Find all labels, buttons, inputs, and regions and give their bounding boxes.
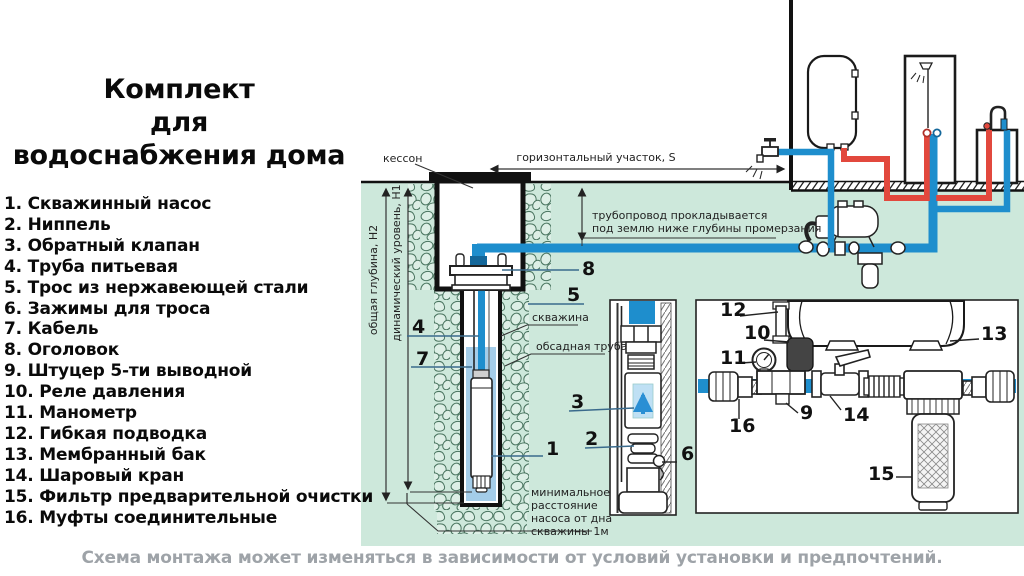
parts-legend: 1. Скважинный насос 2. Ниппель 3. Обратн… xyxy=(4,194,360,529)
flexible-hose xyxy=(776,306,786,340)
shower-hot-valve xyxy=(923,129,930,136)
callout-14: 14 xyxy=(843,404,869,426)
title-line-3: водоснабжения дома xyxy=(0,140,358,173)
pump-top-detail xyxy=(619,468,667,513)
legend-item-5: 5. Трос из нержавеющей стали xyxy=(4,278,360,299)
callout-11: 11 xyxy=(720,347,746,369)
callout-10: 10 xyxy=(744,322,770,344)
title-line-2: для xyxy=(0,107,358,140)
detail-pipe-stub xyxy=(629,301,655,324)
callout-9: 9 xyxy=(800,402,813,424)
legend-item-15: 15. Фильтр предварительной очистки xyxy=(4,487,360,508)
borehole xyxy=(462,262,500,505)
legend-item-7: 7. Кабель xyxy=(4,319,360,340)
legend-item-13: 13. Мембранный бак xyxy=(4,445,360,466)
legend-item-9: 9. Штуцер 5-ти выводной xyxy=(4,361,360,382)
legend-item-16: 16. Муфты соединительные xyxy=(4,508,360,529)
stones-right-upper xyxy=(523,184,551,290)
sink-faucet xyxy=(984,107,1007,130)
legend-item-8: 8. Оголовок xyxy=(4,340,360,361)
label-min-distance-3: насоса от дна xyxy=(531,512,612,525)
title-line-1: Комплект xyxy=(0,74,358,107)
legend-item-2: 2. Ниппель xyxy=(4,215,360,236)
outdoor-tap xyxy=(746,138,778,179)
casing-wall-detail xyxy=(661,303,671,513)
callout-2: 2 xyxy=(585,428,598,450)
callout-3: 3 xyxy=(571,391,584,413)
footer-note: Схема монтажа может изменяться в зависим… xyxy=(0,548,1024,568)
callout-16: 16 xyxy=(729,415,755,437)
legend-item-12: 12. Гибкая подводка xyxy=(4,424,360,445)
callout-12: 12 xyxy=(720,299,746,321)
label-min-distance-2: расстояние xyxy=(531,499,598,512)
callout-6: 6 xyxy=(681,443,694,465)
label-min-distance-4: скважины 1м xyxy=(531,525,609,538)
legend-item-11: 11. Манометр xyxy=(4,403,360,424)
water-heater xyxy=(808,56,858,150)
legend-item-3: 3. Обратный клапан xyxy=(4,236,360,257)
stones-right-lower xyxy=(499,290,529,512)
callout-4: 4 xyxy=(412,316,425,338)
label-min-distance-1: минимальное xyxy=(531,486,610,499)
page: общая глубина, Н2 динамический уровень, … xyxy=(0,0,1024,576)
label-horizontal-section: горизонтальный участок, S xyxy=(516,151,675,164)
label-dynamic-level: динамический уровень, Н1 xyxy=(390,184,403,341)
stones-left-lower xyxy=(434,290,463,512)
house xyxy=(791,0,1017,190)
callout-13: 13 xyxy=(981,323,1007,345)
callout-7: 7 xyxy=(416,348,429,370)
label-casing-pipe: обсадная труба xyxy=(536,340,627,353)
stones-left-upper xyxy=(408,184,436,290)
membrane-tank xyxy=(788,301,964,350)
label-kesson: кессон xyxy=(383,152,422,165)
legend-item-14: 14. Шаровый кран xyxy=(4,466,360,487)
label-borehole: скважина xyxy=(532,311,589,324)
legend-item-1: 1. Скважинный насос xyxy=(4,194,360,215)
sink-cabinet xyxy=(977,130,1017,183)
callout-15: 15 xyxy=(868,463,894,485)
callout-8: 8 xyxy=(582,258,595,280)
label-total-depth: общая глубина, Н2 xyxy=(367,225,380,335)
label-pipe-note-1: трубопровод прокладывается xyxy=(592,209,767,222)
legend-item-10: 10. Реле давления xyxy=(4,382,360,403)
label-pipe-note-2: под землю ниже глубины промерзания xyxy=(592,222,821,235)
pre-filter xyxy=(904,371,962,510)
callout-1: 1 xyxy=(546,438,559,460)
legend-item-6: 6. Зажимы для троса xyxy=(4,299,360,320)
submersible-pump xyxy=(471,370,492,492)
check-valve-detail xyxy=(625,373,661,428)
legend-item-4: 4. Труба питьевая xyxy=(4,257,360,278)
pump-detail-inset xyxy=(610,300,676,515)
corrugated-union xyxy=(864,376,905,397)
stones-bottom xyxy=(437,506,527,534)
page-title: Комплект для водоснабжения дома xyxy=(0,74,358,173)
shower-cold-valve xyxy=(933,129,940,136)
callout-5: 5 xyxy=(567,284,580,306)
pressure-switch xyxy=(787,338,813,371)
